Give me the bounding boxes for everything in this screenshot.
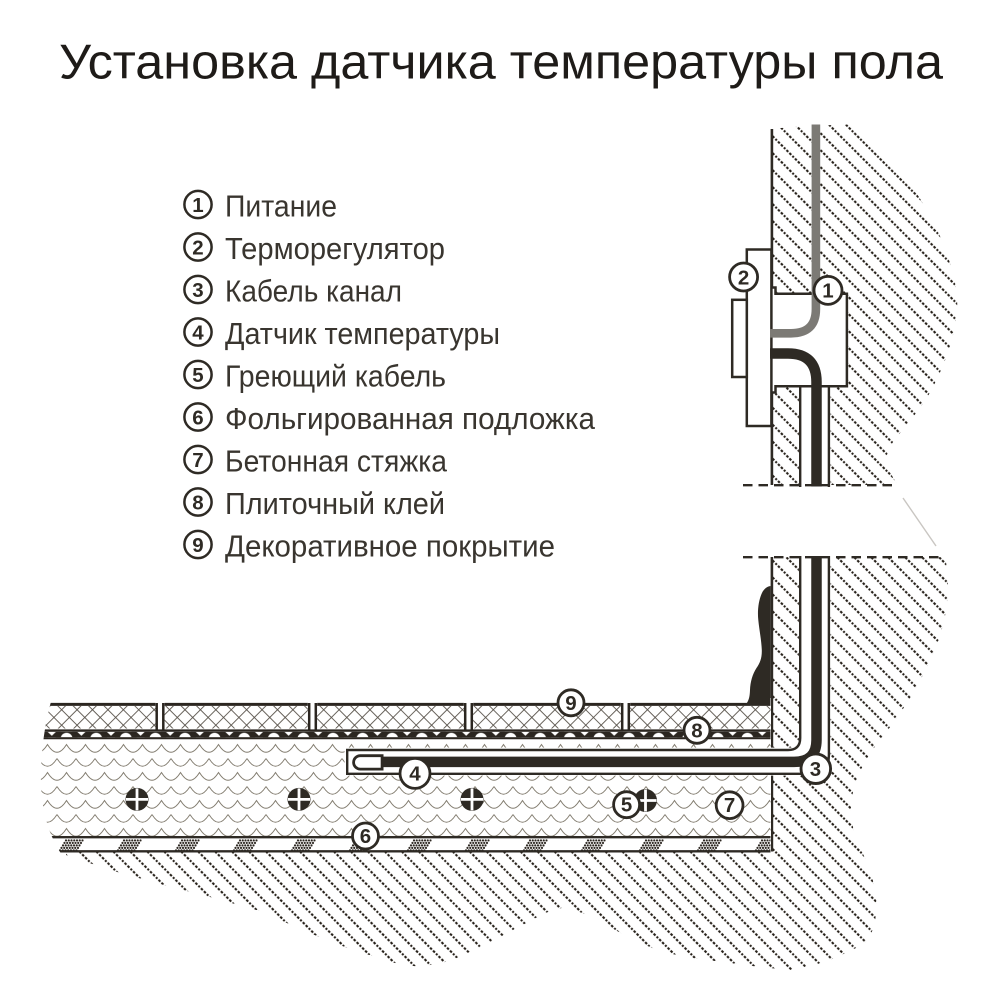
svg-text:8: 8 xyxy=(691,719,702,742)
svg-text:5: 5 xyxy=(621,794,632,817)
svg-text:8: 8 xyxy=(192,491,203,514)
svg-text:4: 4 xyxy=(192,321,204,344)
svg-text:Датчик температуры: Датчик температуры xyxy=(225,316,500,351)
svg-text:3: 3 xyxy=(192,279,203,302)
svg-text:9: 9 xyxy=(565,692,576,715)
svg-text:1: 1 xyxy=(822,280,833,303)
svg-text:Бетонная стяжка: Бетонная стяжка xyxy=(225,444,448,479)
svg-text:Установка датчика температуры: Установка датчика температуры пола xyxy=(59,34,943,89)
svg-text:Кабель канал: Кабель канал xyxy=(225,274,402,309)
svg-text:Декоративное покрытие: Декоративное покрытие xyxy=(225,529,555,564)
svg-text:5: 5 xyxy=(192,364,203,387)
svg-text:4: 4 xyxy=(409,763,421,786)
svg-text:6: 6 xyxy=(360,825,371,848)
svg-text:Греющий кабель: Греющий кабель xyxy=(225,359,446,394)
svg-text:2: 2 xyxy=(192,236,203,259)
svg-text:2: 2 xyxy=(738,266,749,289)
svg-text:1: 1 xyxy=(192,194,203,217)
svg-text:7: 7 xyxy=(192,449,203,472)
svg-text:Терморегулятор: Терморегулятор xyxy=(225,231,445,266)
svg-text:3: 3 xyxy=(810,758,821,781)
svg-text:6: 6 xyxy=(192,406,203,429)
svg-text:7: 7 xyxy=(724,794,735,817)
svg-text:Плиточный клей: Плиточный клей xyxy=(225,486,445,521)
svg-text:Фольгированная подложка: Фольгированная подложка xyxy=(225,401,596,436)
svg-text:Питание: Питание xyxy=(225,189,337,224)
svg-text:9: 9 xyxy=(192,534,203,557)
